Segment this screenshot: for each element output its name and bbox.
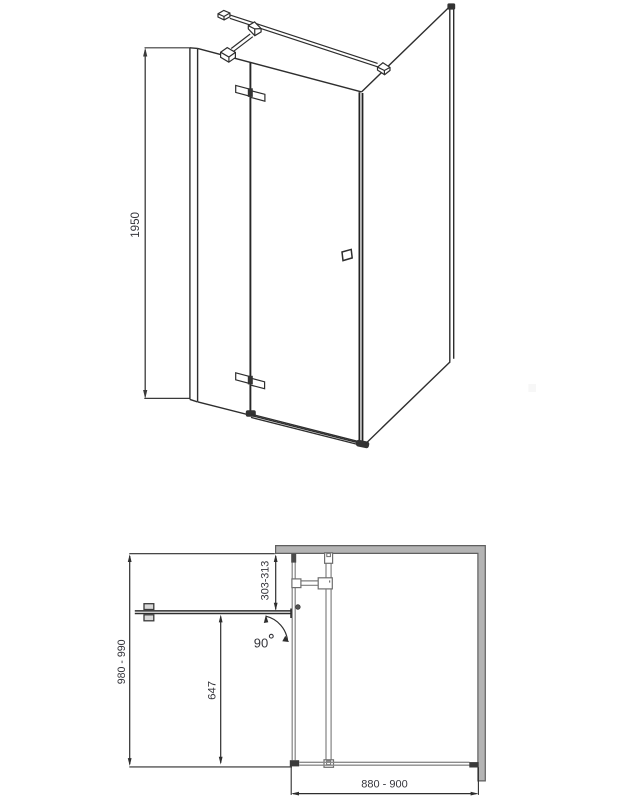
svg-text:647: 647: [206, 681, 218, 700]
svg-text:90: 90: [254, 635, 268, 650]
svg-text:980 - 990: 980 - 990: [116, 639, 128, 684]
svg-text:880 - 900: 880 - 900: [361, 778, 407, 790]
svg-text:303-313: 303-313: [260, 561, 272, 601]
svg-text:1950: 1950: [129, 212, 142, 238]
